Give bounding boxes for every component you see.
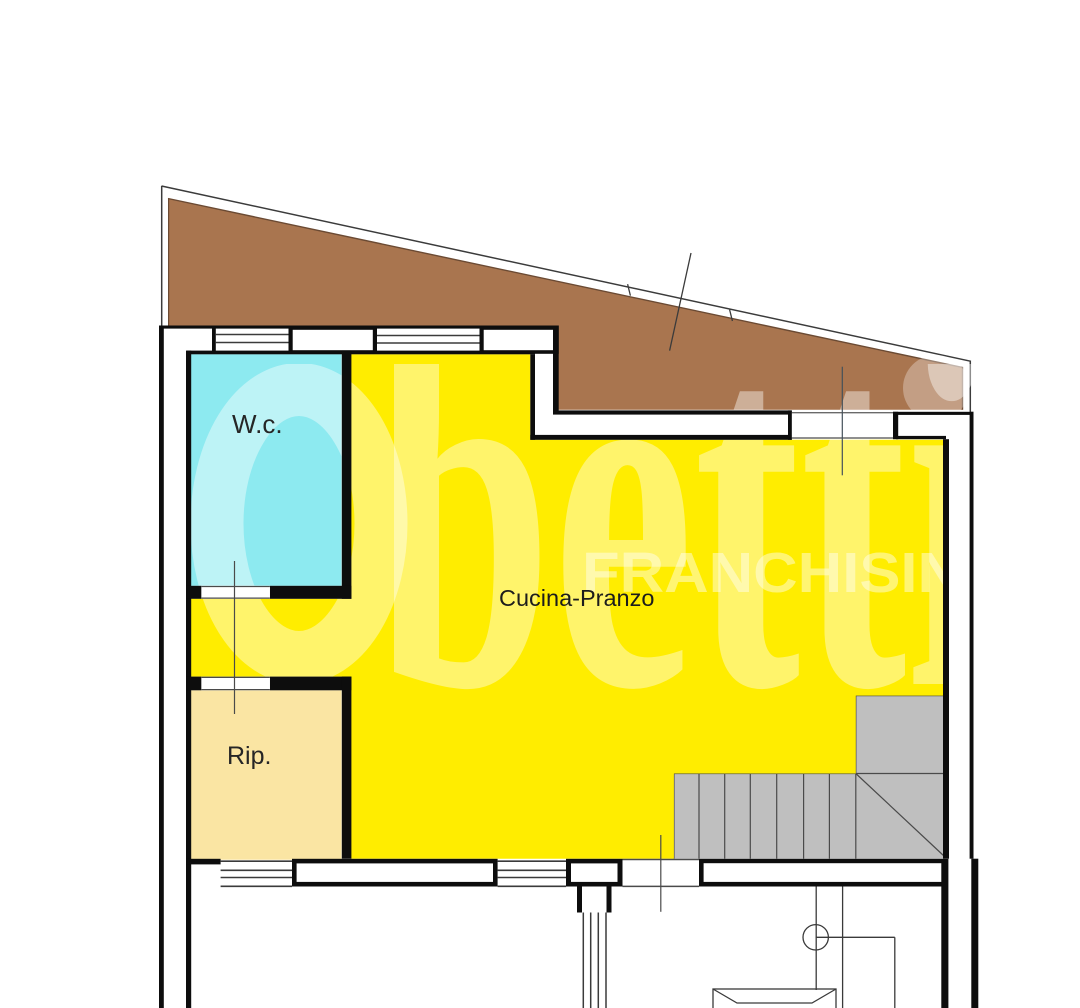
svg-text:Rip.: Rip. — [227, 742, 271, 770]
svg-text:W.c.: W.c. — [232, 409, 283, 439]
svg-text:Cucina-Pranzo: Cucina-Pranzo — [499, 585, 654, 611]
